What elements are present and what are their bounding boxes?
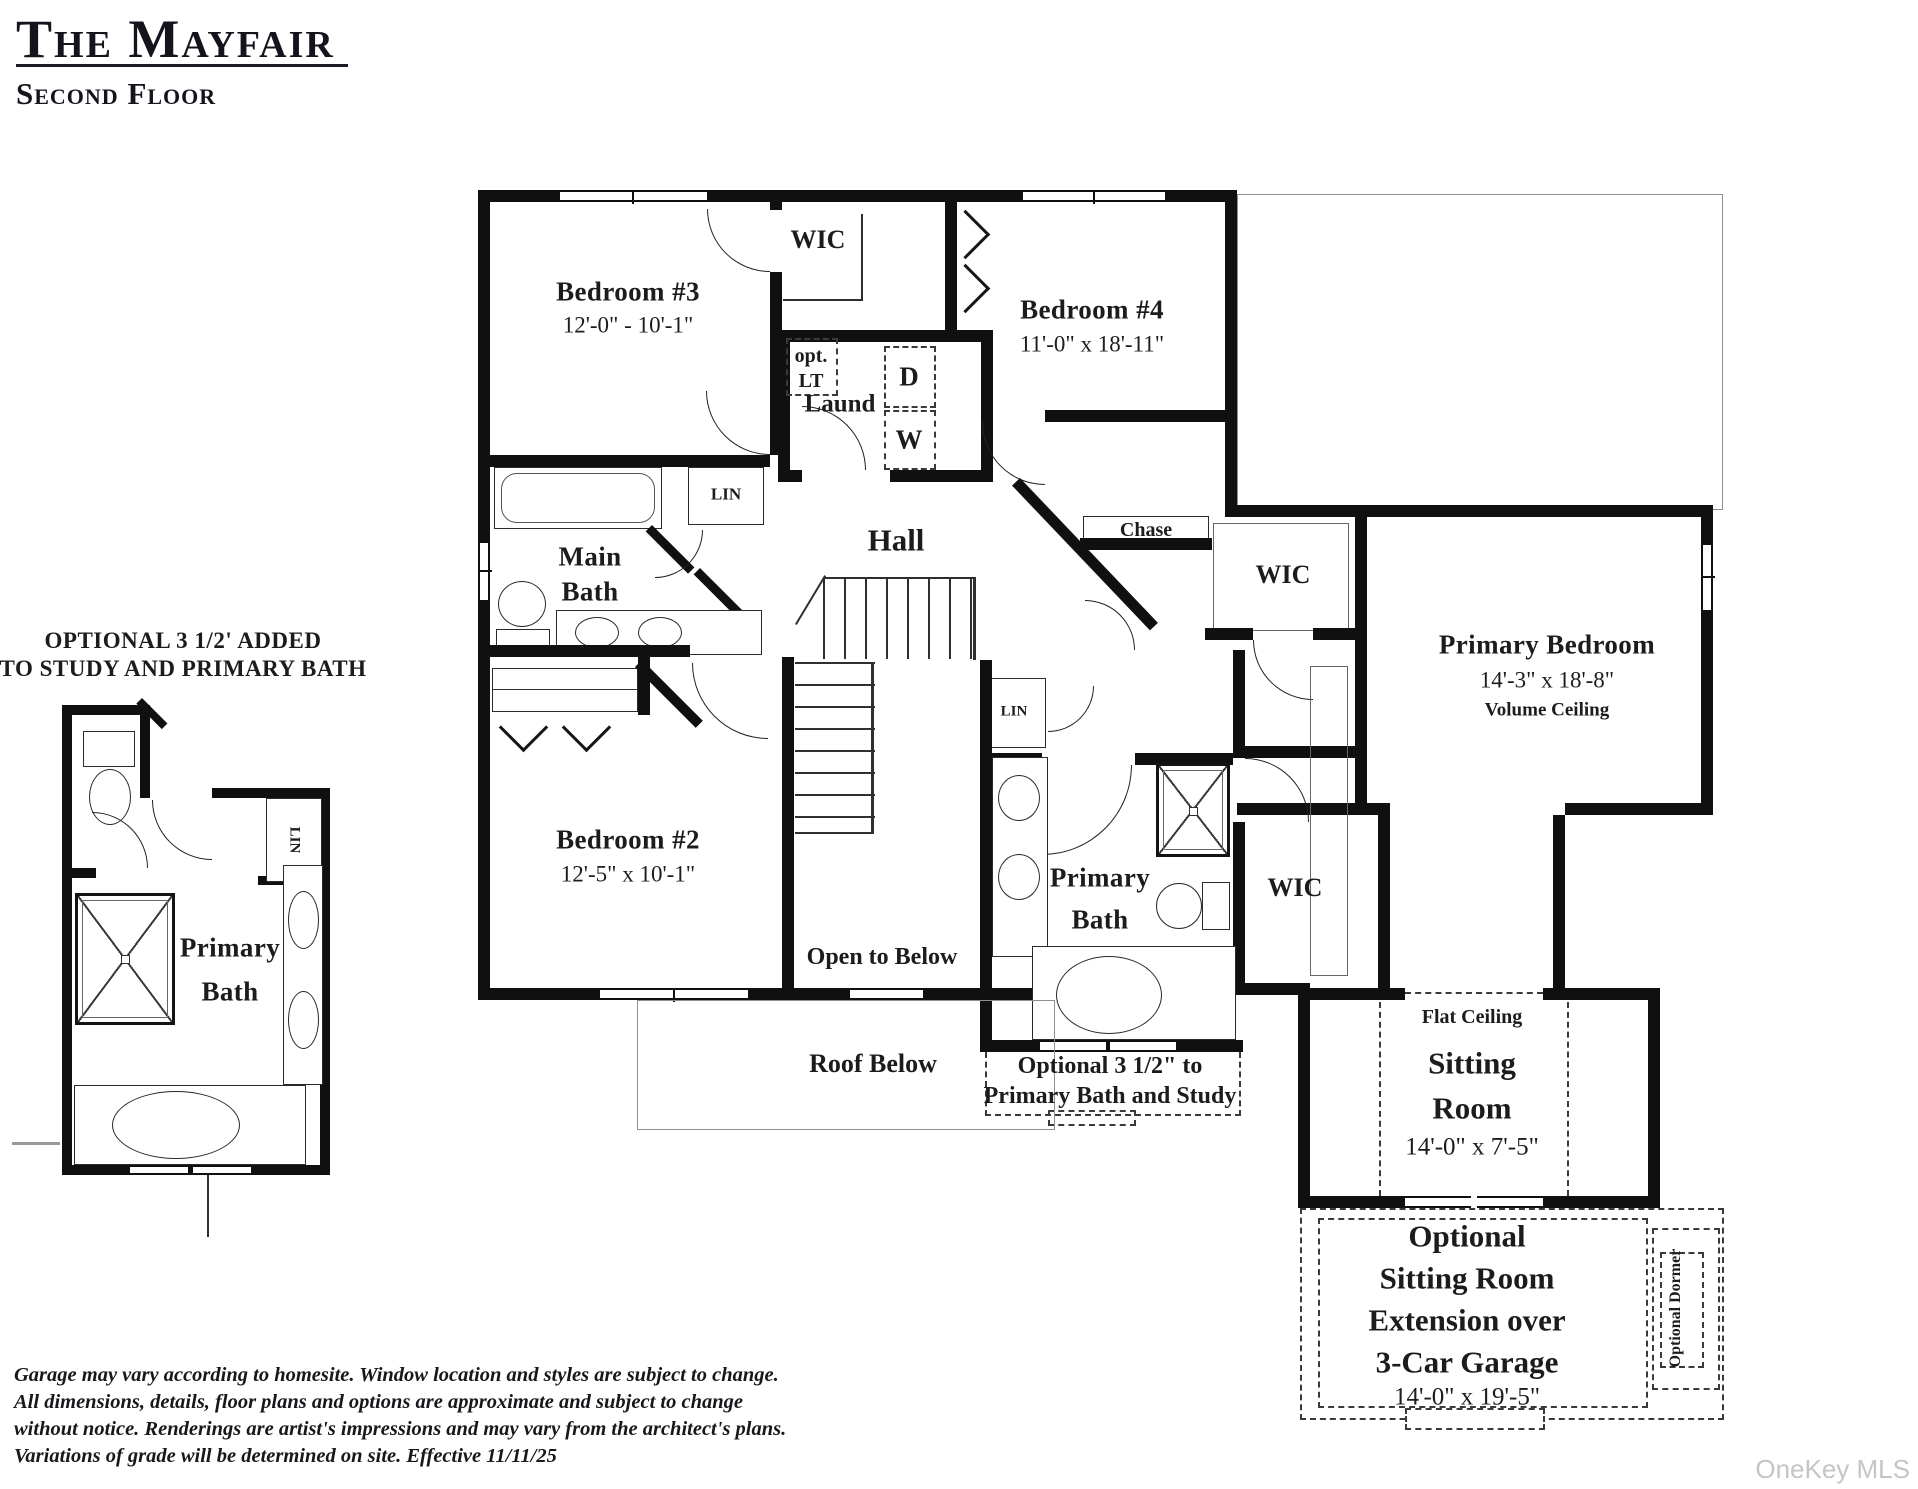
disclaimer-text: Garage may vary according to homesite. W… [14,1362,786,1470]
wall-laund-right [981,330,993,480]
opt-lt-label-1: opt. [795,346,828,366]
wic-top-shelf-line-h [783,299,863,301]
wall-primary-top [1225,505,1713,517]
window-bedroom3 [560,190,707,202]
wall-bedroom4-right [1225,202,1237,505]
optional-bath-note-2: Primary Bath and Study [984,1084,1237,1108]
door-arc-lin-hall [1048,686,1094,732]
b2-closet-shelf [492,689,638,690]
b2-closet [492,668,638,712]
optional-bath-dashed-notch [1048,1110,1136,1126]
roof-outline [1237,194,1723,510]
primarybath-sink-2 [998,854,1040,900]
window-sitting-2 [1477,1196,1543,1208]
sitting-dashed-left [1379,1002,1381,1196]
extension-garage-door-dashed [1405,1408,1545,1430]
wall-b4-bottom [1045,410,1225,422]
window-bath-2 [1110,1040,1176,1052]
extension-label-3: Extension over [1368,1305,1565,1336]
chase-label: Chase [1120,520,1172,540]
inset-wall-top [62,705,150,715]
sitting-opening-dashed [1405,992,1543,994]
mainbath-sink-1 [575,617,619,648]
wall-sitting-top-left [1298,988,1405,1000]
wall-chase-bottom [1080,538,1212,550]
wall-bath-left [980,660,992,1052]
wall-b2-hall [782,657,794,988]
stairs-end-line [795,832,874,834]
bedroom4-dims: 11'-0" x 18'-11" [1020,333,1164,356]
wic-top-shelf-line-v [861,214,863,301]
inset-grade-line [12,1142,60,1145]
window-bedroom2 [600,988,748,1000]
primarybath-shower-drain [1189,807,1198,816]
inset-extension-line [207,1175,209,1237]
wall-sitting-bottom-left [1298,1196,1405,1208]
wall-wic-bottom-bottom [1233,983,1310,995]
stairs-lower-right-line [871,662,874,834]
wic-right-label: WIC [1256,562,1311,588]
disclaimer-line-2: All dimensions, details, floor plans and… [14,1389,786,1416]
laund-label: Laund [805,392,876,417]
sitting-room-name-2: Room [1432,1093,1511,1124]
wic-top-label: WIC [791,227,846,253]
window-primary-bedroom [1701,545,1713,610]
stairs-upper-treads [823,577,975,659]
wall-sitting-right [1648,988,1660,1208]
inset-window-2 [193,1165,251,1175]
flat-ceiling-label: Flat Ceiling [1422,1007,1523,1027]
inset-wall-left [62,705,72,1175]
extension-label-4: 3-Car Garage [1376,1347,1559,1378]
primarybath-tub-basin [1056,956,1162,1034]
wall-wicright-bottom-1 [1205,628,1253,640]
disclaimer-line-4: Variations of grade will be determined o… [14,1443,786,1470]
window-open-below [850,988,923,1000]
primarybath-sink-1 [998,775,1040,821]
wall-sitting-left [1298,988,1310,1208]
inset-wall-stub [62,868,96,878]
extension-label-1: Optional [1408,1221,1525,1252]
wall-laund-bottom-right [890,470,993,482]
optional-bath-note-1: Optional 3 1/2" to [1018,1054,1203,1078]
inset-primary-bath-label-1: Primary [180,935,280,962]
title-rule [16,64,348,67]
inset-door-arc-hall [152,800,212,860]
wall-vestibule-right [1553,815,1565,1000]
inset-shower-drain [121,955,130,964]
bedroom3-name: Bedroom #3 [556,279,700,306]
door-arc-wic-right [1253,640,1313,700]
primary-bedroom-note: Volume Ceiling [1485,701,1609,720]
open-to-below-label: Open to Below [807,945,958,969]
door-arc-bedroom3 [706,391,770,455]
inset-sink-1 [288,891,319,949]
inset-caption-line2: TO STUDY AND PRIMARY BATH [0,656,366,682]
hall-label: Hall [868,525,925,556]
extension-dims: 14'-0" x 19'-5" [1394,1385,1540,1410]
wall-primary-left [1355,517,1367,803]
floor-label: Second Floor [16,76,216,112]
mainbath-tub-basin [501,473,655,523]
dormer-label: Optional Dormer [1668,1249,1684,1368]
watermark: OneKey MLS [1755,1454,1910,1485]
sitting-room-name-1: Sitting [1428,1048,1516,1079]
wic-bottom-label: WIC [1268,875,1323,901]
mainbath-label-2: Bath [561,579,618,606]
primarybath-toilet-tank [1202,882,1230,930]
inset-caption-line1: OPTIONAL 3 1/2' ADDED [45,628,322,654]
primarybath-toilet-bowl [1156,883,1202,929]
extension-label-2: Sitting Room [1380,1263,1555,1294]
washer-label: W [896,427,923,454]
opt-lt-label-2: LT [799,371,824,391]
wall-primary-bottom-right [1565,803,1713,815]
inset-shower [75,893,175,1025]
hall-lin-label: LIN [1001,705,1028,720]
bedroom2-dims: 12'-5" x 10'-1" [561,863,695,886]
sitting-room-dims: 14'-0" x 7'-5" [1405,1135,1539,1160]
stairs-top-line [823,577,975,579]
primarybath-label-1: Primary [1050,865,1150,892]
inset-primary-bath-label-2: Bath [201,979,258,1006]
window-main-bath [478,543,490,600]
wall-wic-bottom-left-1 [1233,650,1245,758]
stairs-diagonal [795,575,826,625]
window-sitting-1 [1405,1196,1471,1208]
floor-plan-sheet: The Mayfair Second Floor OPTIONAL 3 1/2'… [0,0,1918,1489]
door-arc-wic-bottom [1245,758,1309,822]
wall-bath-b2 [478,645,690,657]
mainbath-label-1: Main [558,544,621,571]
wall-sitting-bottom-right [1543,1196,1660,1208]
wall-laund-bottom-left [778,470,802,482]
inset-window-1 [130,1165,188,1175]
plan-title: The Mayfair [16,8,335,70]
bedroom3-dims: 12'-0" - 10'-1" [563,314,694,337]
mainbath-lin-label: LIN [711,486,741,503]
inset-door-arc-toilet [92,812,148,868]
disclaimer-line-1: Garage may vary according to homesite. W… [14,1362,786,1389]
window-bedroom4 [1023,190,1165,202]
inset-wall-mid [212,788,330,798]
bedroom4-name: Bedroom #4 [1020,297,1164,324]
wall-mainbath-top [478,455,770,467]
door-arc-bedroom2 [692,663,768,739]
wall-vestibule-left [1378,815,1390,1000]
door-arc-primary-bath [1042,765,1132,855]
roof-below-label: Roof Below [809,1051,937,1077]
wall-b3-wic-stub [770,202,782,210]
inset-wall-toilet-right [140,705,150,798]
primary-bedroom-dims: 14'-3" x 18'-8" [1480,669,1614,692]
wall-bottom-left [478,988,1055,1000]
inset-sink-2 [288,991,319,1049]
primary-bedroom-name: Primary Bedroom [1439,632,1655,659]
inset-tub-basin [112,1091,240,1159]
door-arc-wic-top [707,209,770,272]
bedroom2-name: Bedroom #2 [556,827,700,854]
primarybath-label-2: Bath [1071,907,1128,934]
mainbath-sink-2 [638,617,682,648]
stairs-right-line [973,577,976,660]
inset-toilet-tank [83,731,135,767]
disclaimer-line-3: without notice. Renderings are artist's … [14,1416,786,1443]
dryer-label: D [899,364,919,391]
inset-lin-label: LIN [287,827,302,854]
sitting-dashed-right [1567,1002,1569,1196]
stairs-lower-treads [795,662,875,832]
wic-bottom-closet-lines [1310,666,1348,976]
mainbath-toilet-bowl [498,581,546,627]
primarybath-shower [1156,763,1230,857]
wall-sitting-top-right [1543,988,1660,1000]
